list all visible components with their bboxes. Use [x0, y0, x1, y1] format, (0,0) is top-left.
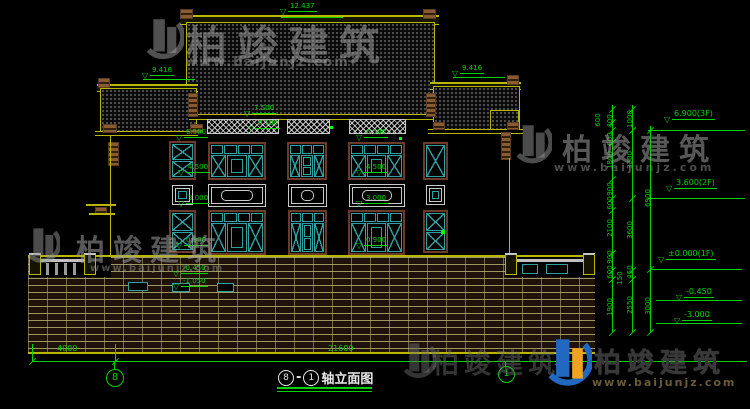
elevation-marker-right-roof: 9.416 — [460, 64, 484, 74]
pane — [227, 223, 246, 252]
elevation-marker: -1.050 — [181, 277, 208, 287]
railing-post — [583, 253, 595, 275]
pane — [291, 223, 301, 252]
pane — [172, 144, 193, 160]
railing-rail — [517, 259, 583, 262]
pane — [364, 145, 376, 154]
elevation-value: 3.600(2F) — [674, 179, 717, 189]
elevation-value: -3.000 — [682, 311, 712, 321]
main-roof-corbel-left — [188, 93, 198, 117]
watermark-url: www.baijunjz.com — [185, 55, 350, 70]
drawing-title: 8 - 1 轴立面图 — [278, 368, 373, 387]
elevation-marker-footing: -3.000 — [682, 311, 712, 321]
dim-label: 150 — [616, 263, 624, 293]
elevation-value: 6.500 — [364, 128, 388, 138]
transom — [351, 145, 402, 154]
dim-label: 21600 — [328, 344, 353, 353]
window-sash — [290, 155, 324, 177]
elevation-value: 3.000 — [364, 194, 388, 204]
main-roof-corbel-right — [426, 93, 436, 117]
elevation-value: 6.500 — [256, 119, 280, 129]
cad-dot — [441, 230, 445, 234]
cad-elevation-drawing: 12.437 9.416 9.416 7.500 6.500 6.500 4.5… — [0, 0, 750, 409]
pane — [304, 225, 312, 237]
lattice-band — [287, 119, 330, 134]
level-line — [656, 300, 742, 301]
transom — [211, 213, 263, 222]
elevation-marker-eave: 7.500 — [252, 104, 276, 114]
panel-inner — [291, 187, 324, 204]
pane — [303, 157, 311, 166]
cad-dot — [330, 126, 333, 129]
left-canopy — [89, 213, 115, 215]
brand-logo-color — [538, 334, 592, 400]
pane — [304, 238, 312, 250]
pane — [426, 232, 445, 250]
pane — [364, 213, 376, 222]
pane — [248, 223, 263, 252]
pane — [377, 213, 389, 222]
pane — [302, 145, 313, 154]
eave-block — [433, 122, 445, 130]
elevation-marker-3f: 6.900(3F) — [672, 110, 715, 120]
pane — [251, 145, 263, 154]
panel-inner — [211, 187, 263, 204]
title-underline — [277, 387, 372, 389]
cad-dot — [399, 137, 402, 140]
pane — [426, 213, 445, 231]
level-line — [453, 77, 505, 78]
watermark-brand: 柏竣建筑 — [594, 341, 726, 380]
elevation-value: -0.450 — [684, 288, 714, 298]
window-2f-b — [208, 142, 266, 180]
dim-tick — [647, 329, 654, 336]
pane — [238, 213, 250, 222]
panel-inner — [429, 188, 442, 202]
elevation-value: 12.437 — [288, 2, 317, 12]
elevation-value: 6.500 — [184, 128, 208, 138]
title-axis-to: 1 — [303, 370, 319, 386]
elevation-value: 0.900 — [364, 236, 388, 246]
pane — [302, 223, 314, 252]
elevation-value: ±0.000(1F) — [666, 250, 716, 260]
dim-label: 6900 — [644, 183, 652, 213]
title-axis-from: 8 — [278, 370, 294, 386]
pane — [351, 213, 363, 222]
pane — [303, 167, 311, 176]
elevation-marker-1f: ±0.000(1F) — [666, 250, 716, 260]
pane — [211, 213, 223, 222]
pane — [387, 223, 402, 252]
pane — [224, 213, 236, 222]
elevation-marker: 0.900 — [364, 236, 388, 246]
pane — [426, 145, 445, 177]
transom — [351, 213, 402, 222]
transom — [211, 145, 263, 154]
elevation-marker: 4.500 — [364, 163, 388, 173]
pane — [290, 155, 300, 177]
window-2f-e — [423, 142, 448, 180]
axis-bubble-8: 8 — [106, 369, 124, 387]
pane — [314, 223, 324, 252]
watermark-url: www.baijunjz.com — [554, 161, 714, 174]
base-vent — [217, 283, 234, 292]
level-line — [650, 269, 742, 270]
brand-logo — [396, 336, 436, 392]
elevation-marker: 6.500 — [184, 128, 208, 138]
elevation-marker-grade: -0.450 — [684, 288, 714, 298]
dim-label: 3000 — [644, 291, 652, 321]
entrance-door — [288, 210, 327, 255]
transom — [290, 145, 324, 154]
elevation-value: 7.500 — [252, 104, 276, 114]
pane — [387, 155, 402, 177]
pane — [301, 155, 313, 177]
elevation-value: 4.500 — [186, 163, 210, 173]
elevation-value: 9.416 — [460, 64, 484, 74]
decor-panel — [208, 184, 266, 207]
brand-logo — [20, 223, 60, 275]
pane — [314, 213, 324, 222]
pane — [314, 155, 324, 177]
elevation-marker: 6.500 — [364, 128, 388, 138]
pane — [377, 145, 389, 154]
left-canopy — [86, 204, 116, 206]
brand-logo — [138, 8, 184, 78]
decor-panel — [426, 185, 445, 205]
baluster — [64, 263, 67, 275]
title-separator: - — [296, 370, 301, 385]
dim-label: 1900 — [606, 292, 614, 322]
level-line — [648, 198, 745, 199]
elevation-value: -1.050 — [181, 277, 208, 287]
elevation-marker: 3.000 — [186, 194, 210, 204]
dim-label: 2550 — [626, 290, 634, 320]
pane — [238, 145, 250, 154]
railing-post — [505, 253, 517, 275]
dim-label: 2100 — [606, 213, 614, 243]
pane — [291, 213, 301, 222]
pane — [248, 155, 263, 177]
eave-block — [103, 124, 117, 133]
dim-label: 4000 — [57, 344, 77, 353]
dim-label: 3600 — [626, 215, 634, 245]
pane — [290, 145, 301, 154]
pane — [227, 155, 246, 177]
window-2f-c — [287, 142, 327, 180]
elevation-value: 3.000 — [186, 194, 210, 204]
pane — [211, 145, 223, 154]
level-line — [656, 323, 742, 324]
brand-logo — [508, 120, 552, 176]
left-roof-finial — [98, 78, 110, 88]
elevation-marker-band: 6.500 — [256, 119, 280, 129]
pane — [224, 145, 236, 154]
window-sash — [211, 155, 263, 177]
level-line — [143, 79, 195, 80]
elevation-marker: 3.000 — [364, 194, 388, 204]
elevation-value: 4.500 — [364, 163, 388, 173]
pane — [251, 213, 263, 222]
window-sash — [426, 145, 445, 177]
pane — [351, 145, 363, 154]
pane — [313, 145, 324, 154]
base-vent — [128, 282, 148, 291]
title-underline — [277, 391, 372, 392]
elevation-value: 6.900(3F) — [672, 110, 715, 120]
watermark-url: www.baijunjz.com — [592, 376, 736, 389]
right-roof-finial — [507, 75, 519, 85]
door-leaves — [291, 223, 324, 252]
base-vent — [522, 264, 538, 274]
dim-tick — [629, 329, 636, 336]
dim-tick — [609, 329, 616, 336]
ridge-finial-right — [423, 9, 436, 19]
pane — [211, 155, 226, 177]
elevation-marker-ridge: 12.437 — [288, 2, 317, 12]
elevation-marker-2f: 3.600(2F) — [674, 179, 717, 189]
decor-panel — [288, 184, 327, 207]
transom — [291, 213, 324, 222]
pane — [390, 213, 402, 222]
pane — [390, 145, 402, 154]
base-vent — [546, 264, 568, 274]
watermark-url: www.baijunjz.com — [90, 263, 224, 274]
title-text: 轴立面图 — [321, 368, 373, 387]
pane — [302, 213, 312, 222]
elevation-marker: 4.500 — [186, 163, 210, 173]
